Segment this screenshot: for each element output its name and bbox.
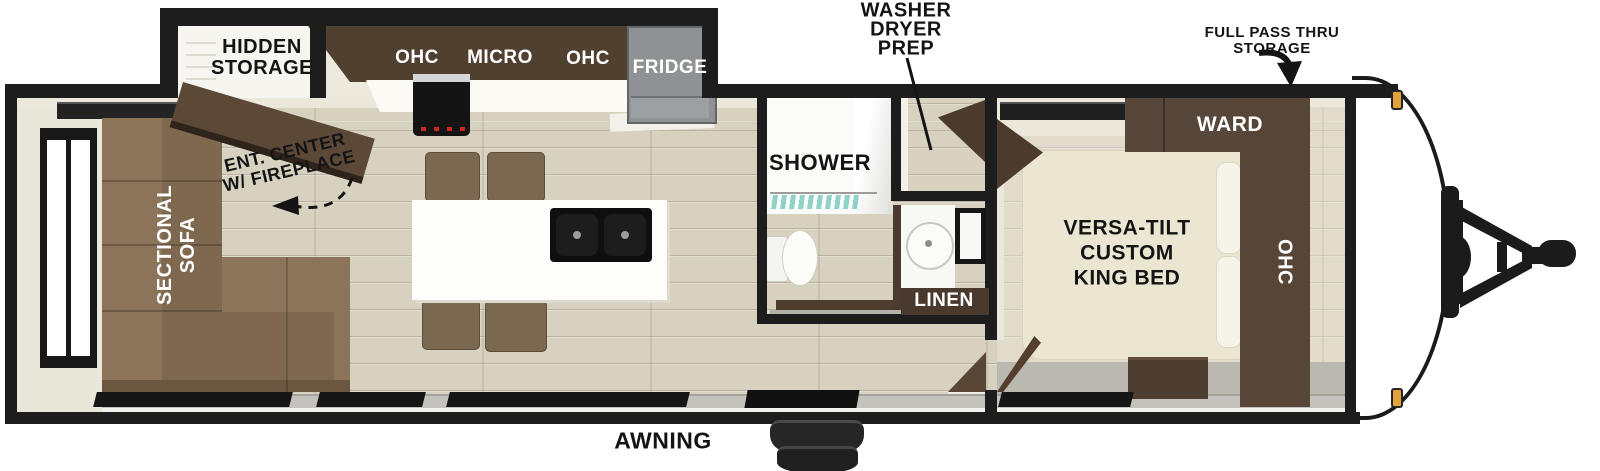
sofa-seam-4: [286, 257, 288, 392]
sofa-seam-3: [102, 310, 222, 312]
rear-window-pane-left: [47, 140, 66, 356]
hidden-storage-label: HIDDEN STORAGE: [211, 37, 313, 79]
hidden-storage-line2: STORAGE: [211, 58, 313, 79]
dining-chair-1: [425, 152, 480, 202]
bottom-window-3: [446, 392, 690, 407]
range-knob-4: [460, 127, 465, 131]
fridge-bottom-panel: [631, 96, 709, 118]
bedroom-bottom-window: [998, 392, 1134, 407]
pass-thru-line1: FULL PASS THRU: [1205, 25, 1340, 41]
bed-nightstand: [1128, 357, 1208, 399]
sink-drain-left: [573, 231, 581, 239]
hitch-coupler: [1538, 240, 1576, 267]
bed-pillow-top: [1216, 162, 1242, 254]
hitch-assembly: [1441, 186, 1576, 318]
sofa-line2: SOFA: [177, 185, 200, 305]
rv-floorplan: HIDDEN STORAGE OHC MICRO OHC FRIDGE WASH…: [0, 0, 1600, 471]
wd-south-wall: [891, 191, 987, 201]
kitchen-micro-label: MICRO: [467, 47, 533, 69]
washer-dryer-prep-label: WASHER DRYER PREP: [861, 2, 952, 59]
range-knob-1: [421, 127, 426, 131]
entry-step-lower: [777, 446, 858, 471]
dining-chair-2: [487, 152, 545, 202]
king-bed-label: VERSA-TILT CUSTOM KING BED: [1063, 216, 1190, 291]
slide-top-wall: [160, 8, 718, 26]
dining-chair-3: [422, 300, 480, 350]
washer-line3: PREP: [861, 40, 952, 59]
kitchen-ohc-right-label: OHC: [566, 48, 610, 70]
sofa-back-column: [102, 118, 162, 392]
fridge-label: FRIDGE: [633, 57, 708, 79]
bedroom-tv-strip: [1000, 102, 1133, 120]
linen-label: LINEN: [914, 290, 974, 312]
bottom-window-2: [316, 392, 426, 407]
sofa-line1: SECTIONAL: [154, 185, 177, 305]
pass-thru-line2: STORAGE: [1205, 41, 1340, 57]
pass-thru-label: FULL PASS THRU STORAGE: [1205, 25, 1340, 57]
hitch-upper-arm: [1460, 206, 1532, 258]
bedroom-west-wall-stub: [985, 390, 997, 412]
bedroom-ohc-label: OHC: [1273, 239, 1296, 285]
toilet-bowl: [782, 230, 818, 286]
kitchen-ohc-left-label: OHC: [395, 47, 439, 69]
bed-line2: CUSTOM: [1063, 241, 1190, 266]
range-knob-3: [447, 127, 452, 131]
hitch-tongue: [1522, 247, 1550, 264]
bottom-wall: [5, 412, 1360, 424]
sectional-sofa-label: SECTIONAL SOFA: [154, 185, 200, 305]
bedroom-tv-shelf: [1000, 118, 1130, 136]
awning-label: AWNING: [614, 428, 712, 455]
bed-pillow-bottom: [1216, 256, 1242, 348]
bath-south-wall: [757, 314, 997, 324]
top-wall-right: [702, 84, 1398, 98]
wardrobe-divider: [1163, 98, 1165, 152]
entry-door-mat: [744, 390, 859, 408]
kitchen-counter: [340, 80, 628, 112]
hitch-lower-arm: [1460, 256, 1532, 308]
bath-west-wall: [757, 98, 767, 323]
bed-line3: KING BED: [1063, 266, 1190, 291]
rear-wall: [5, 84, 17, 424]
front-interior-wall: [1345, 84, 1356, 424]
hitch-cross-bar: [1452, 200, 1463, 304]
sink-drain-right: [621, 231, 629, 239]
bed-line1: VERSA-TILT: [1063, 216, 1190, 241]
sofa-armrest: [334, 300, 350, 392]
marker-light-top: [1391, 90, 1403, 110]
front-cap: [1352, 76, 1451, 420]
top-wall-left: [5, 84, 178, 98]
range-knob-2: [434, 127, 439, 131]
sofa-front-shadow: [102, 380, 350, 392]
vanity-sink-drain: [925, 240, 932, 247]
shower-glass: [771, 195, 863, 209]
ward-label: WARD: [1197, 113, 1263, 137]
sofa-seam-1: [102, 180, 222, 182]
dining-chair-4: [485, 300, 547, 352]
hitch-apex-bar: [1497, 242, 1507, 272]
bath-mirror: [955, 208, 986, 264]
vanity-side: [893, 205, 901, 316]
range-top-trim: [413, 74, 470, 82]
shower-label: SHOWER: [769, 150, 871, 176]
bottom-window-1: [93, 392, 293, 407]
rear-window-pane-right: [71, 140, 90, 356]
shower-rod: [770, 192, 877, 194]
hidden-storage-line1: HIDDEN: [211, 37, 313, 58]
marker-light-bottom: [1391, 388, 1403, 408]
wd-partition-wall: [891, 98, 901, 201]
wd-closet-lining: [901, 98, 908, 191]
